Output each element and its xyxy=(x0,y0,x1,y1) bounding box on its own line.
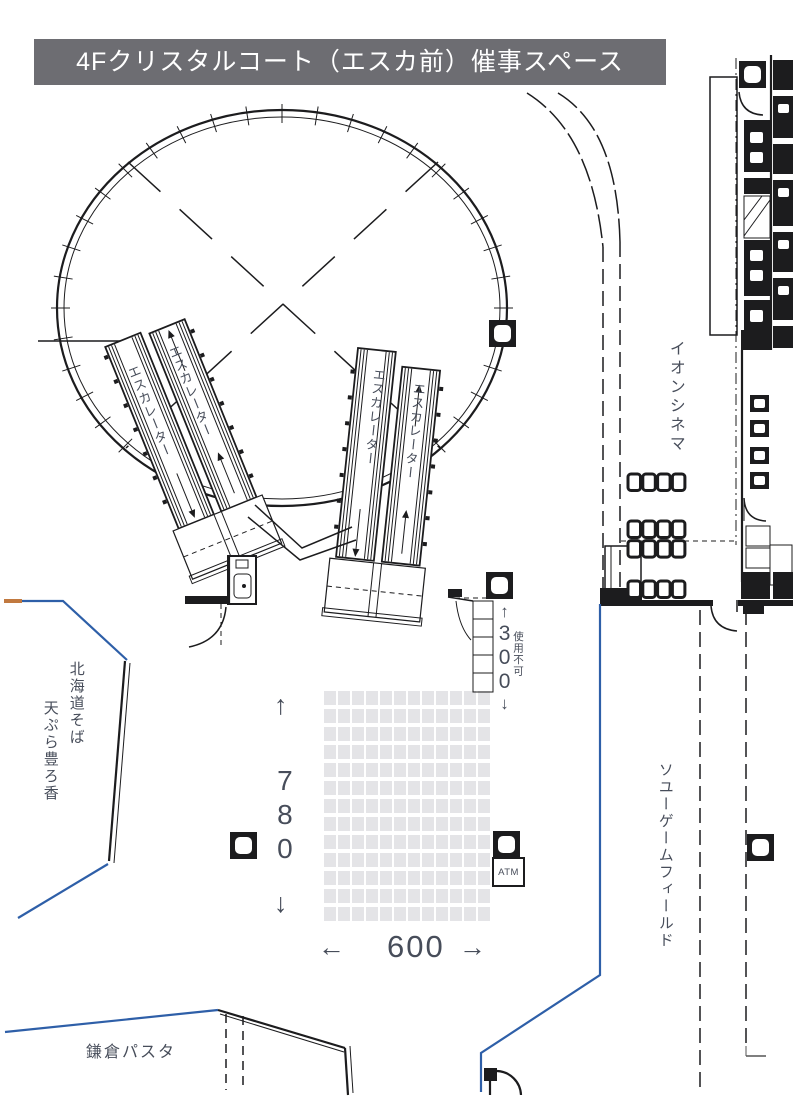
column xyxy=(747,834,774,861)
width-arrow-left: ← xyxy=(318,932,345,963)
stairs-unusable xyxy=(448,589,493,692)
store-label-tempura-horoka: 天ぷら豊ろ香 xyxy=(42,700,58,802)
width-arrow-right: → xyxy=(459,932,486,963)
escalator-pair-left xyxy=(98,313,285,584)
width-value: 600 xyxy=(387,929,445,965)
depth-value: 780 xyxy=(270,765,299,867)
depth-arrow-up: ↑ xyxy=(274,690,288,721)
corridor-seating xyxy=(628,474,685,598)
column xyxy=(486,572,513,599)
store-label-hokkaido-soba: 北海道そば xyxy=(68,661,84,746)
unusable-label: 使用不可 xyxy=(512,631,523,677)
page-title: 4Fクリスタルコート（エスカ前）催事スペース xyxy=(34,39,666,85)
atm-box: ATM xyxy=(492,857,525,887)
store-label-soyu-game-field: ソユーゲームフィールド xyxy=(657,762,673,949)
cinema-wall-structures xyxy=(710,55,793,614)
side-arrow-down: ↓ xyxy=(495,694,514,714)
column xyxy=(739,61,766,88)
column xyxy=(493,831,520,858)
corridor-curve xyxy=(527,93,620,600)
escalator-pair-right xyxy=(322,347,450,626)
store-label-kamakura-pasta: 鎌倉パスタ xyxy=(86,1038,176,1062)
floor-plan-page: 4Fクリスタルコート（エスカ前）催事スペース xyxy=(0,0,793,1119)
depth-arrow-down: ↓ xyxy=(274,888,288,919)
atm-label: ATM xyxy=(498,867,519,878)
column xyxy=(489,320,516,347)
column xyxy=(230,832,257,859)
atrium-cross-dashed xyxy=(126,162,440,448)
bottom-right-door xyxy=(484,1068,521,1095)
side-arrow-up: ↑ xyxy=(495,602,514,622)
store-label-aeon-cinema: イオンシネマ xyxy=(666,340,683,454)
